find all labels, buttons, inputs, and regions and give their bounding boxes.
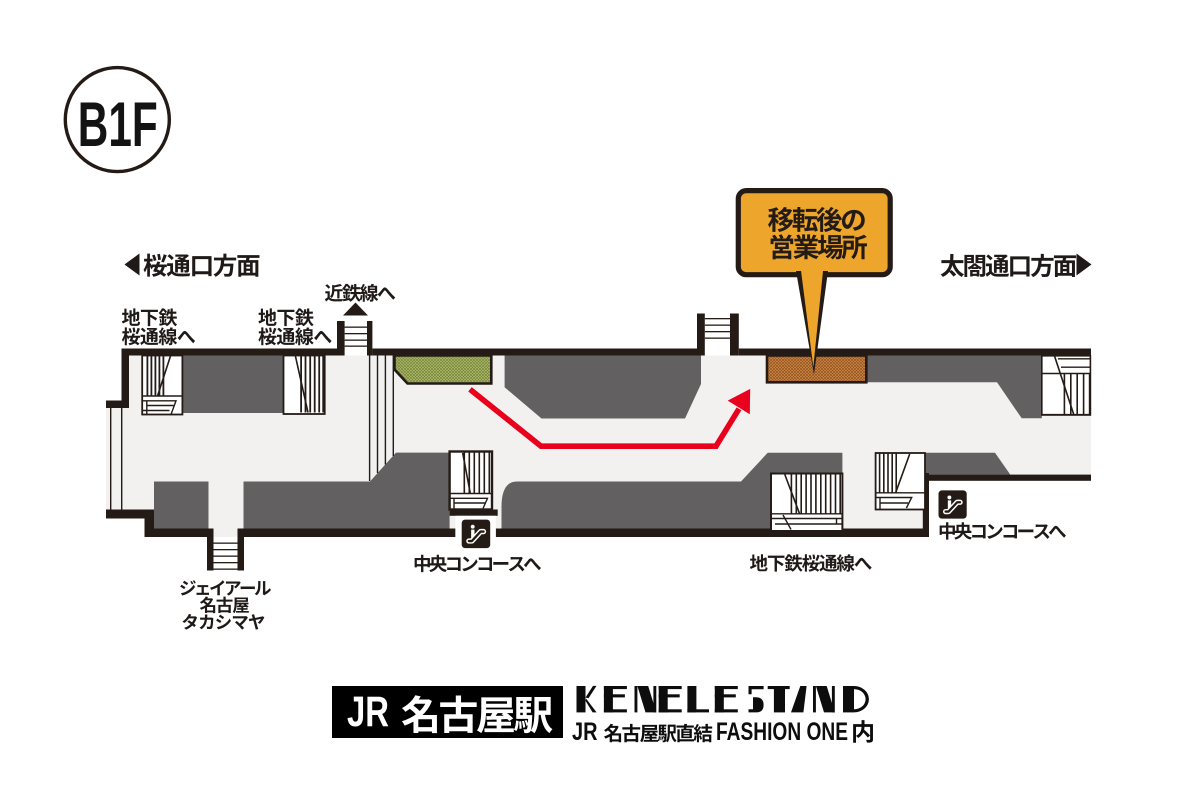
svg-text:FASHION ONE: FASHION ONE [716,718,848,746]
svg-text:JR: JR [347,688,389,736]
svg-text:JR: JR [572,718,598,746]
svg-text:B1F: B1F [78,90,158,160]
